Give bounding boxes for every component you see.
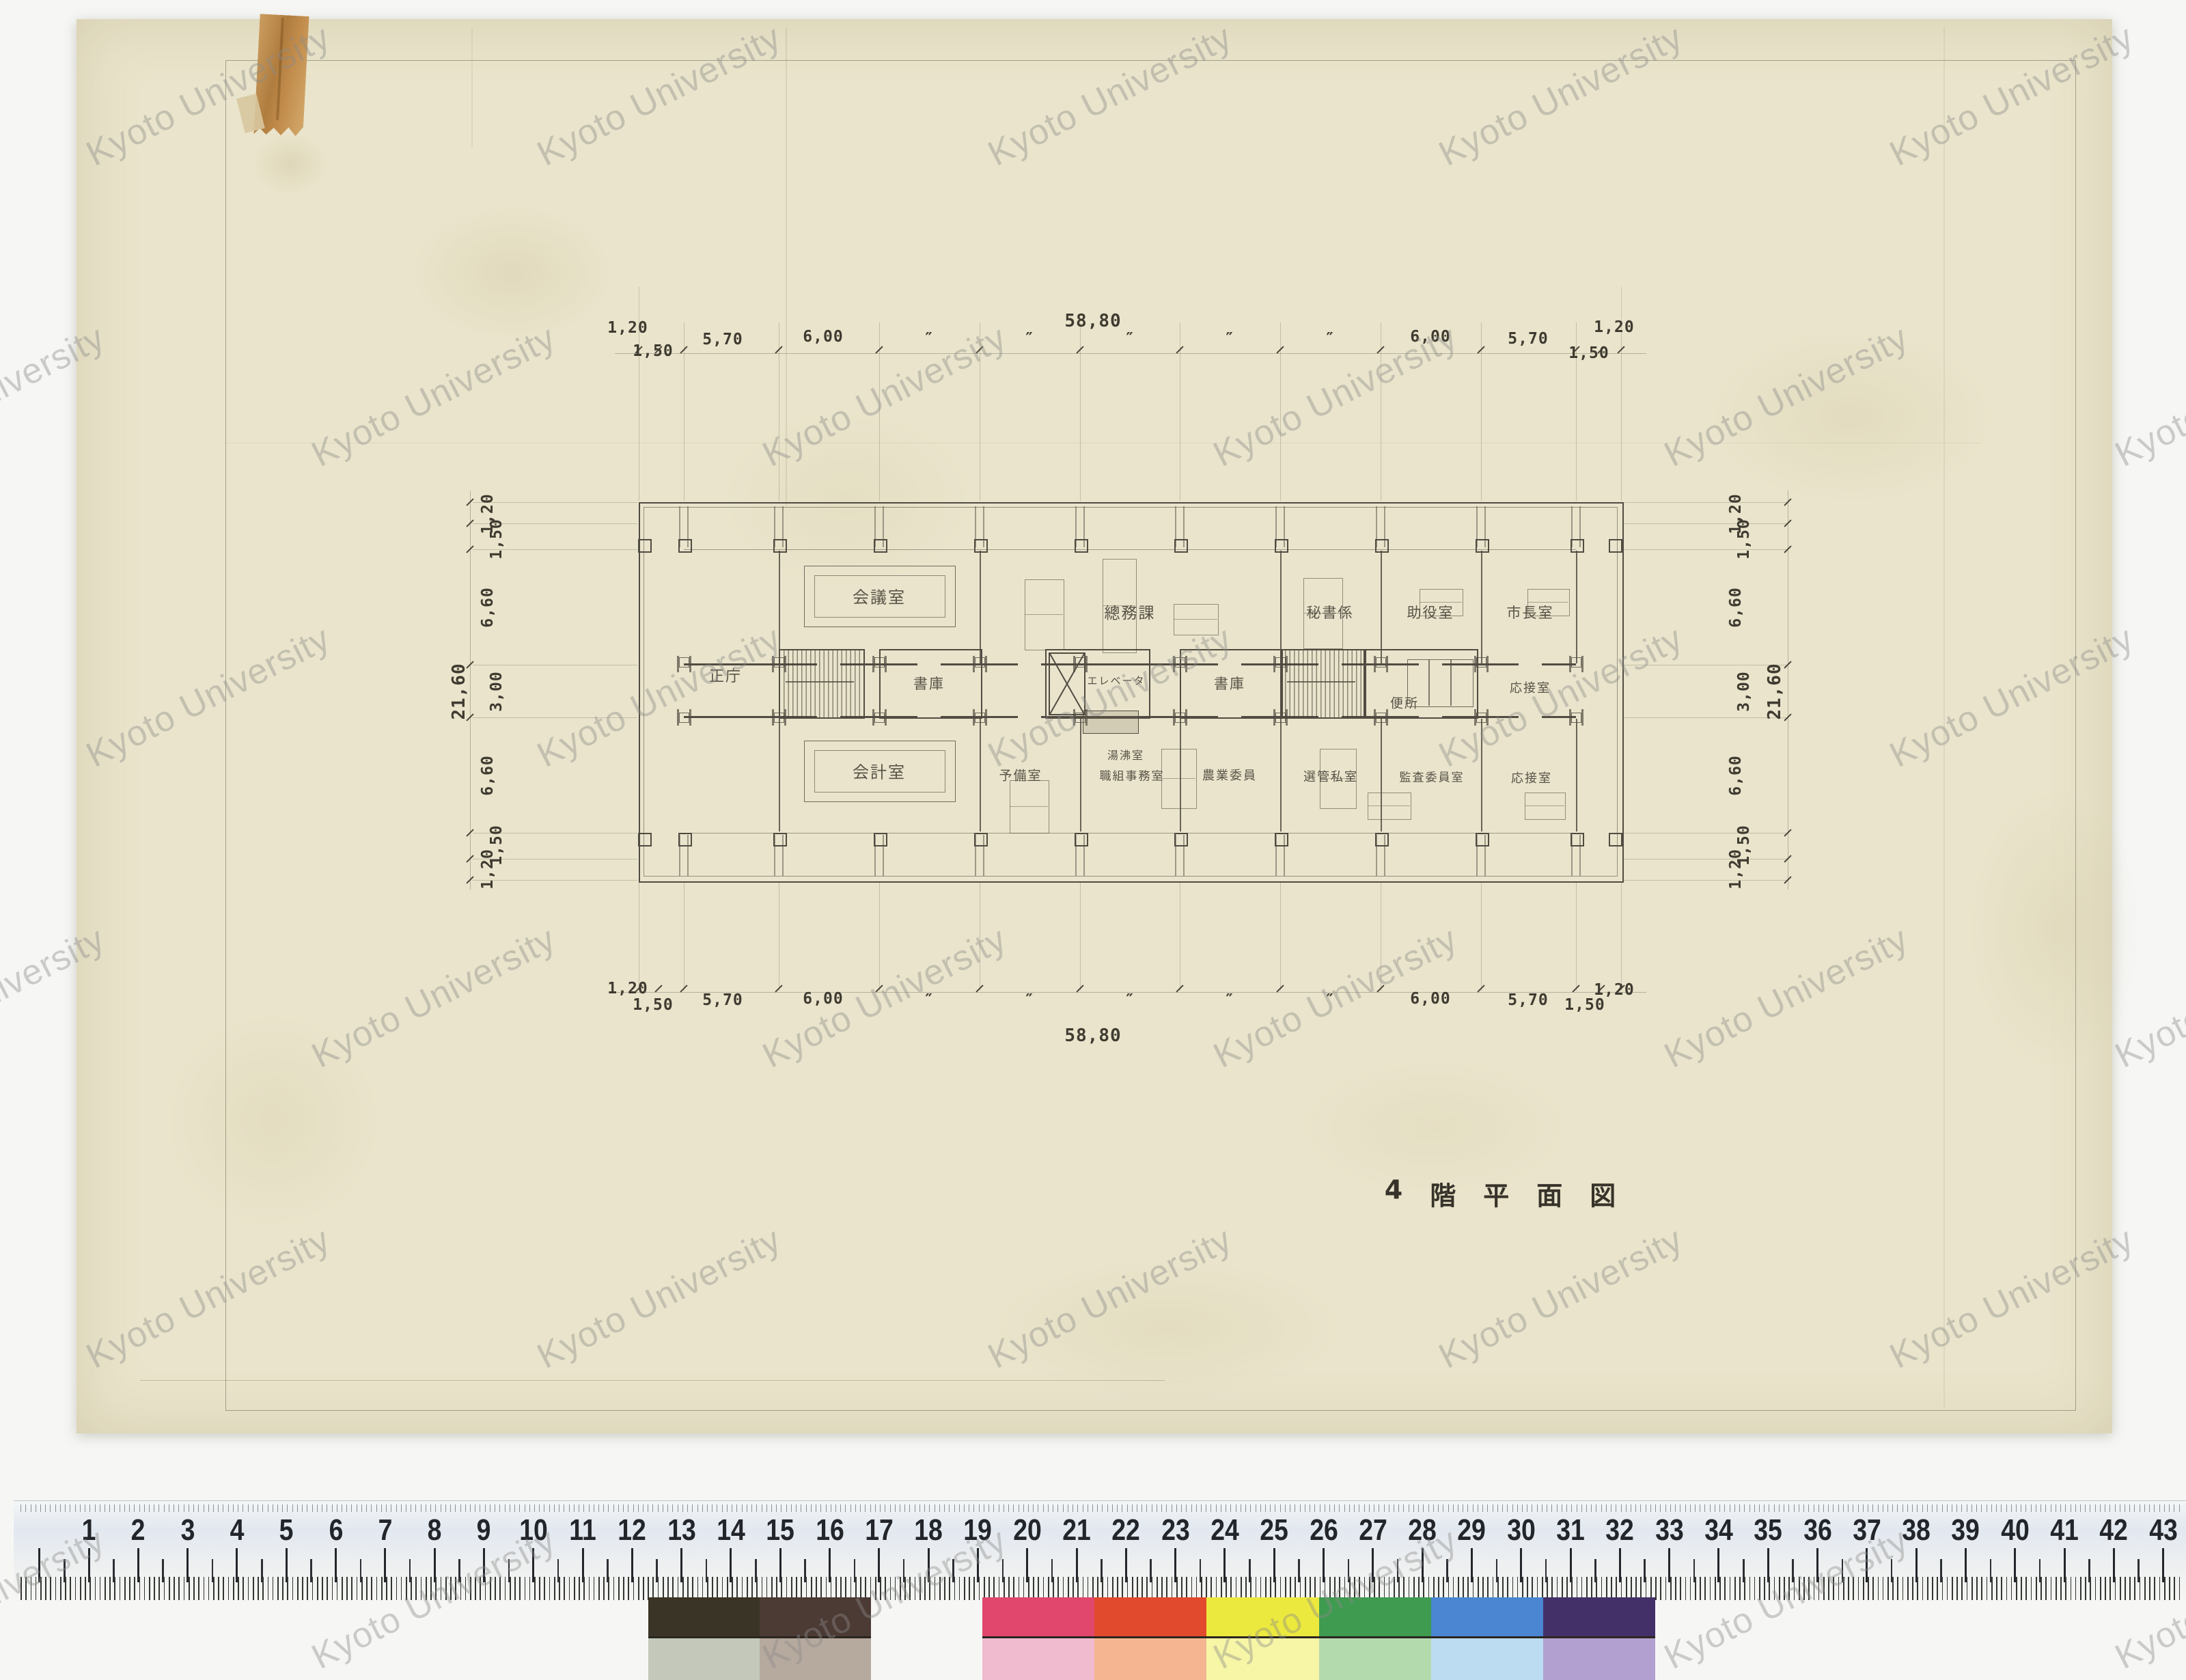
- color-patch: [1319, 1597, 1431, 1636]
- scanned-drawing-canvas: 会議室總務課秘書係助役室市長室正庁書庫エレベータ湯沸室書庫便所応接室会計室予備室…: [0, 0, 2186, 1680]
- color-patch: [1206, 1638, 1318, 1680]
- color-patch: [1094, 1597, 1206, 1636]
- color-patch: [1543, 1597, 1655, 1636]
- color-patch: [1094, 1638, 1206, 1680]
- color-patch: [648, 1638, 760, 1680]
- color-patch: [1431, 1597, 1543, 1636]
- patch-divider: [648, 1636, 871, 1638]
- color-patch: [982, 1638, 1094, 1680]
- color-patch: [648, 1597, 760, 1636]
- color-patch: [760, 1638, 871, 1680]
- color-patch: [982, 1597, 1094, 1636]
- color-patch: [1319, 1638, 1431, 1680]
- color-calibration-patches: [0, 0, 2186, 1680]
- color-patch: [1543, 1638, 1655, 1680]
- color-patch: [1431, 1638, 1543, 1680]
- color-patch: [1206, 1597, 1318, 1636]
- color-patch: [760, 1597, 871, 1636]
- patch-divider: [982, 1636, 1655, 1638]
